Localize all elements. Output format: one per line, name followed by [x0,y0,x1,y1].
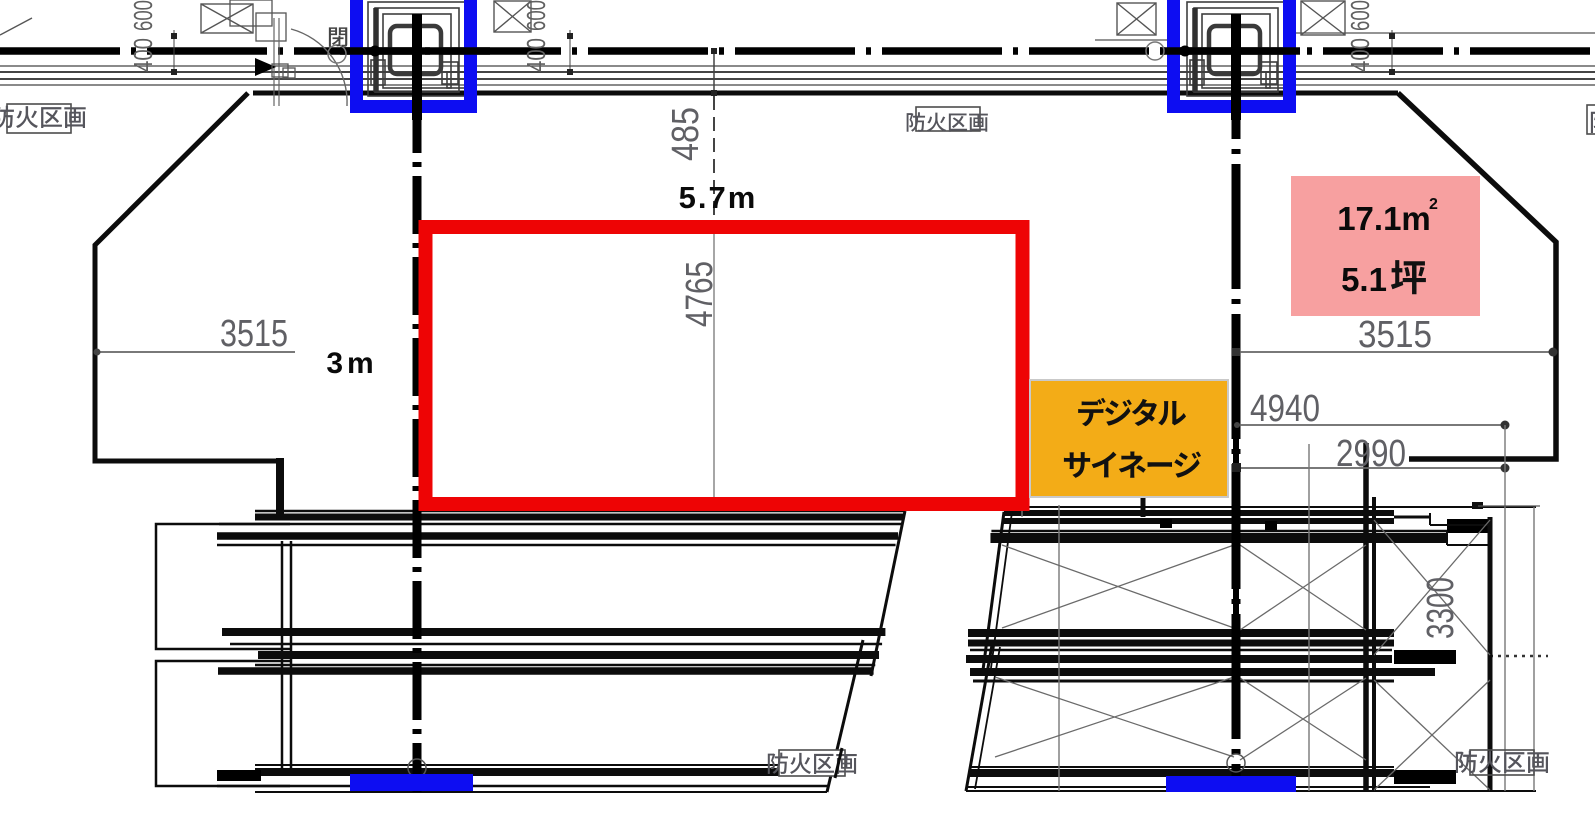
svg-text:17.1m: 17.1m [1337,200,1431,237]
svg-text:4765: 4765 [679,261,721,327]
svg-text:3m: 3m [326,347,377,380]
svg-text:400: 400 [521,38,551,72]
svg-text:600: 600 [1345,0,1375,31]
svg-text:3515: 3515 [220,313,288,355]
svg-text:5.7m: 5.7m [679,180,758,215]
svg-text:600: 600 [128,0,158,31]
svg-text:400: 400 [128,38,158,72]
svg-text:400: 400 [1345,38,1375,72]
svg-text:600: 600 [521,0,551,31]
svg-text:5.1: 5.1 [1341,261,1387,298]
svg-text:2990: 2990 [1336,433,1406,475]
svg-text:3515: 3515 [1358,314,1432,356]
svg-text:3300: 3300 [1420,577,1462,639]
svg-text:4940: 4940 [1250,388,1320,430]
svg-text:2: 2 [1429,196,1438,213]
svg-text:485: 485 [665,107,707,161]
